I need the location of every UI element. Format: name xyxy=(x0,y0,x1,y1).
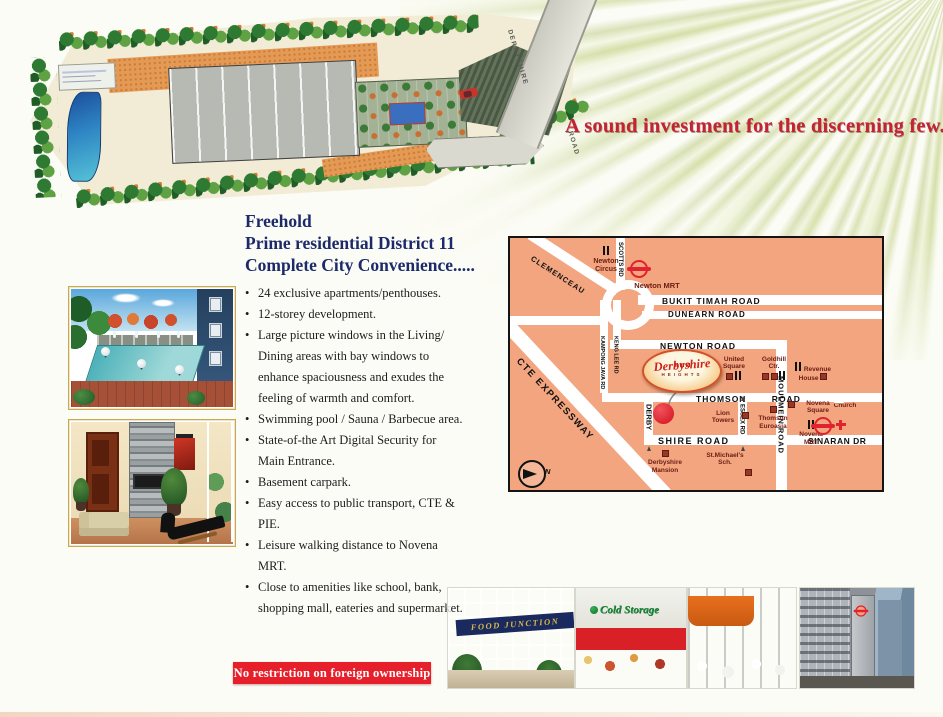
building-icon xyxy=(726,373,733,380)
umbrella xyxy=(175,365,184,374)
heading-line-2: Prime residential District 11 xyxy=(245,232,475,254)
eatery-icon xyxy=(735,371,742,380)
eatery-icon xyxy=(779,371,786,380)
landmark-newton-mrt: Newton MRT xyxy=(630,260,684,291)
landmark-label: St.Michael's Sch. xyxy=(706,452,743,466)
distant-tower xyxy=(878,600,902,688)
landmark-label: Lion Towers xyxy=(712,410,734,424)
potted-plant xyxy=(73,478,89,504)
road-label-keng-lee: KENG LEE RD xyxy=(613,336,619,374)
location-map: CLEMENCEAU SCOTTS RD BUKIT TIMAH ROAD DU… xyxy=(508,236,884,492)
cold-storage-logo-icon xyxy=(590,606,598,614)
road-label-dunearn: DUNEARN ROAD xyxy=(668,310,746,319)
cloud xyxy=(151,299,175,307)
road-label-shire: SHIRE ROAD xyxy=(658,436,730,446)
plant-pot xyxy=(76,502,86,511)
landmark-label: United Square xyxy=(723,356,745,370)
building-icon xyxy=(762,373,769,380)
landmark-label: Newton Circus xyxy=(593,258,618,273)
landmark-label: Goldhill Ctr. xyxy=(762,356,786,370)
photo-novena-buildings xyxy=(800,588,914,688)
landmark-newton-circus: Newton Circus xyxy=(588,246,624,274)
page-bottom-tint xyxy=(0,712,943,717)
swimming-pool xyxy=(67,92,102,182)
landmark-label: Derbyshire Mansion xyxy=(648,459,682,473)
feature-item: Easy access to public transport, CTE & P… xyxy=(245,493,465,535)
building-icon xyxy=(742,412,749,419)
landmark-lion-towers: Lion Towers xyxy=(706,410,740,425)
photo-outdoor-cafe xyxy=(688,588,796,688)
orange-awning xyxy=(688,596,754,626)
feature-item: Close to amenities like school, bank, sh… xyxy=(245,577,465,619)
church-icon xyxy=(834,394,844,403)
flowering-trees xyxy=(105,311,191,331)
landmark-thomson-euroasia: Thomson Euroasia xyxy=(754,406,792,430)
site-location-dot xyxy=(653,403,674,424)
landmark-st-michaels: St.Michael's Sch. xyxy=(702,452,748,467)
feature-item: 24 exclusive apartments/penthouses. xyxy=(245,283,465,304)
mrt-icon xyxy=(855,605,866,616)
red-cross-icon xyxy=(836,420,846,430)
building-icon xyxy=(770,406,777,413)
interior-photo xyxy=(68,419,236,547)
condo-building xyxy=(197,289,233,381)
building-icon xyxy=(662,450,669,457)
bush xyxy=(73,389,95,405)
feature-item: Swimming pool / Sauna / Barbecue area. xyxy=(245,409,465,430)
landmark-label: Newton MRT xyxy=(634,282,679,291)
building-block-west xyxy=(168,60,360,164)
pool-photo xyxy=(68,286,236,410)
landmark-church: Church xyxy=(828,402,862,409)
building-icon xyxy=(788,401,795,408)
cafe-floor xyxy=(448,670,574,688)
road-west-connector xyxy=(510,316,606,325)
landmark-revenue-house: Revenue House xyxy=(792,362,834,383)
road-label-kampong-java: KAMPONG JAVA RD xyxy=(599,336,605,389)
landmark-label: Church xyxy=(834,402,857,409)
one-way-arrow-icon xyxy=(741,396,745,401)
courtyard-deck xyxy=(355,77,468,148)
courtyard-pool xyxy=(389,102,426,126)
photo-cold-storage: Cold Storage xyxy=(576,588,686,688)
feature-item: Basement carpark. xyxy=(245,472,465,493)
landmark-label: Thomson Euroasia xyxy=(758,415,787,429)
site-plan-illustration: DERBYSHIRE ROAD xyxy=(20,4,594,210)
pool-deck xyxy=(71,381,233,407)
one-way-arrow-icon xyxy=(741,446,745,451)
heading-line-3: Complete City Convenience..... xyxy=(245,254,475,276)
supermarket-interior xyxy=(576,650,686,688)
photo-food-junction: FOOD JUNCTION xyxy=(448,588,574,688)
red-fascia-band xyxy=(576,628,686,650)
bush xyxy=(187,391,205,405)
plan-legend-box xyxy=(58,62,116,90)
building-icon xyxy=(820,373,827,380)
feature-list: 24 exclusive apartments/penthouses. 12-s… xyxy=(245,283,465,619)
building-icon xyxy=(771,373,778,380)
landmark-derbyshire-mansion: Derbyshire Mansion xyxy=(644,450,686,474)
heading-block: Freehold Prime residential District 11 C… xyxy=(245,210,475,276)
landmark-goldhill-ctr: Goldhill Ctr. xyxy=(756,356,792,382)
landmark-label: Novena Square xyxy=(806,400,829,414)
feature-item: State-of-the Art Digital Security for Ma… xyxy=(245,430,465,472)
office-tower xyxy=(800,588,850,688)
derbyshire-heights-logo: Derbyshire HEIGHTS xyxy=(642,349,722,393)
potted-plant xyxy=(161,468,187,506)
road-label-derby: DERBY xyxy=(645,404,654,430)
foreign-ownership-banner: No restriction on foreign ownership xyxy=(233,662,431,684)
brochure-page: { "tagline": "A sound investment for the… xyxy=(0,0,943,717)
feature-item: Leisure walking distance to Novena MRT. xyxy=(245,535,465,577)
mrt-icon xyxy=(630,260,648,278)
eatery-icon xyxy=(795,362,802,371)
compass-north-label: N xyxy=(545,467,550,476)
eatery-icon xyxy=(603,246,610,255)
feature-item: Large picture windows in the Living/ Din… xyxy=(245,325,465,409)
mrt-entrance-pillar xyxy=(852,596,874,682)
road-label-bukit-timah: BUKIT TIMAH ROAD xyxy=(662,296,761,306)
heading-line-1: Freehold xyxy=(245,210,475,232)
cold-storage-sign: Cold Storage xyxy=(590,604,659,616)
outdoor-tables xyxy=(688,654,796,688)
umbrella xyxy=(137,359,146,368)
tagline: A sound investment for the discerning fe… xyxy=(565,115,930,138)
street xyxy=(800,676,914,688)
umbrella xyxy=(101,347,110,356)
compass-icon xyxy=(518,460,546,488)
sofa xyxy=(79,512,129,536)
wooden-door xyxy=(86,432,119,512)
red-artwork xyxy=(174,438,195,470)
feature-item: 12-storey development. xyxy=(245,304,465,325)
cold-storage-sign-text: Cold Storage xyxy=(600,604,659,616)
building-icon xyxy=(745,469,752,476)
mrt-icon xyxy=(814,417,832,435)
